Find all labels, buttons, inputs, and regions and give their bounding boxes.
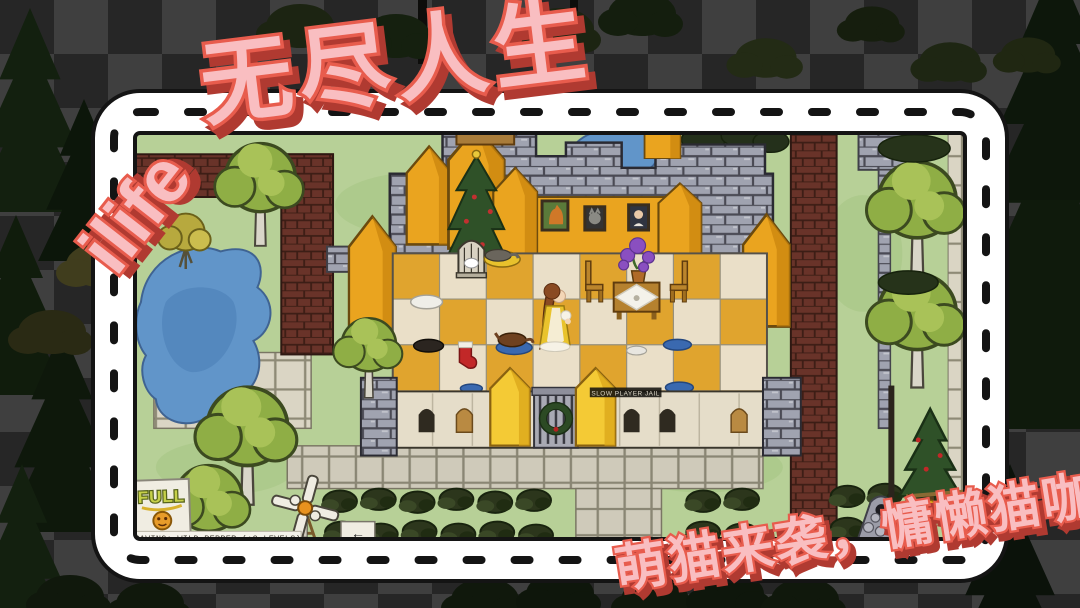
frame-and-titles: ilife ilife 无尽人生 无尽人生 萌猫来袭，慵懒猫咖 萌猫来袭，慵懒猫… bbox=[0, 0, 1080, 608]
screenshot-stage: SLOW PLAYER JAIL bbox=[0, 0, 1080, 608]
game-title: ilife ilife 无尽人生 无尽人生 bbox=[63, 0, 603, 288]
sketch-frame bbox=[114, 112, 986, 560]
frame-dash-marks bbox=[114, 112, 986, 560]
svg-text:ilife: ilife bbox=[63, 136, 207, 288]
game-tagline: 萌猫来袭，慵懒猫咖 萌猫来袭，慵懒猫咖 bbox=[611, 467, 1080, 607]
